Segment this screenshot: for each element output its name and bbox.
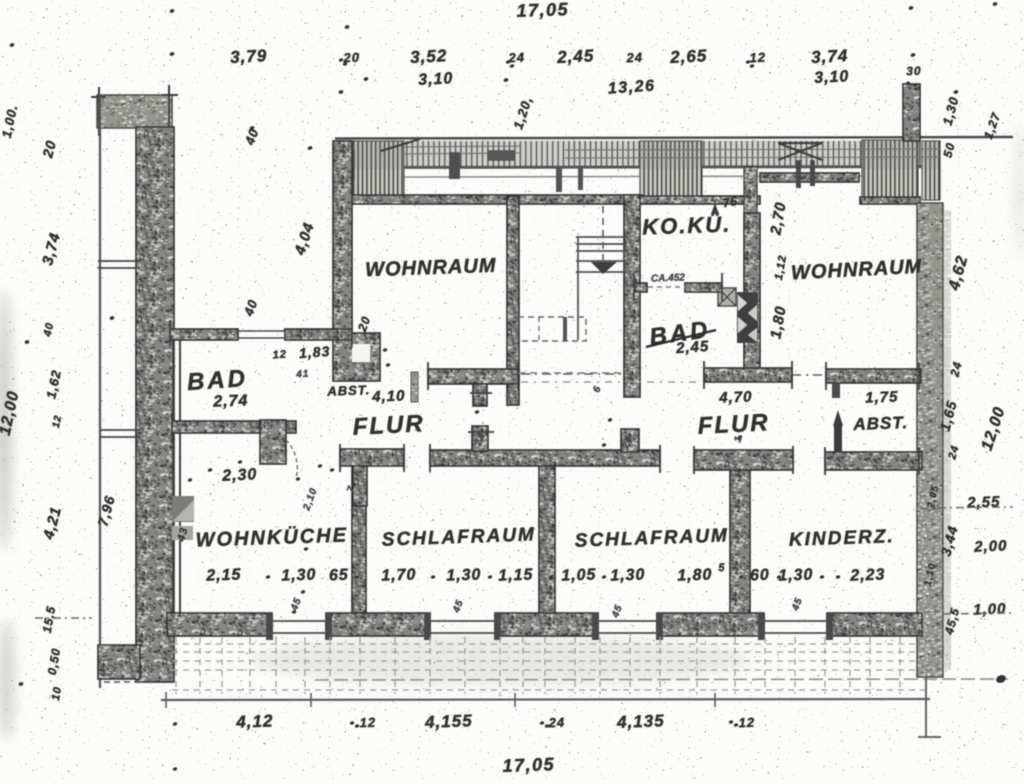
svg-text:75: 75 <box>722 194 740 210</box>
svg-text:2,65: 2,65 <box>669 46 708 67</box>
svg-text:1,75: 1,75 <box>865 388 899 406</box>
svg-text:1,30: 1,30 <box>610 566 646 584</box>
svg-text:60: 60 <box>750 567 770 585</box>
svg-text:KO.KÜ.: KO.KÜ. <box>642 211 732 239</box>
svg-text:12: 12 <box>272 349 287 362</box>
svg-text:1,70: 1,70 <box>381 566 417 584</box>
svg-text:65: 65 <box>329 567 349 585</box>
svg-text:24: 24 <box>547 715 565 731</box>
svg-text:41: 41 <box>295 369 310 381</box>
svg-text:2,45: 2,45 <box>675 338 710 357</box>
svg-text:WOHNRAUM: WOHNRAUM <box>365 255 497 282</box>
svg-text:2,30: 2,30 <box>221 466 258 485</box>
svg-text:3,52: 3,52 <box>410 46 448 67</box>
svg-text:2,23: 2,23 <box>849 566 886 584</box>
svg-text:BAD: BAD <box>186 365 249 396</box>
svg-text:1,00: 1,00 <box>973 600 1007 618</box>
svg-text:1,05: 1,05 <box>561 566 597 584</box>
svg-text:2,55: 2,55 <box>966 493 1001 511</box>
svg-text:24: 24 <box>507 50 525 66</box>
svg-text:2,74: 2,74 <box>212 392 249 410</box>
svg-text:3,10: 3,10 <box>814 68 850 87</box>
svg-text:17,05: 17,05 <box>502 754 555 776</box>
svg-text:1,83: 1,83 <box>299 343 331 361</box>
svg-text:2,15: 2,15 <box>205 566 242 584</box>
svg-text:2,45: 2,45 <box>556 46 595 67</box>
svg-text:CA.452: CA.452 <box>651 272 686 284</box>
svg-text:4,12: 4,12 <box>235 711 274 731</box>
svg-text:3,79: 3,79 <box>230 46 268 67</box>
svg-text:12: 12 <box>359 715 376 731</box>
svg-text:1,80: 1,80 <box>677 566 713 584</box>
svg-text:17,05: 17,05 <box>516 0 569 21</box>
svg-text:4,10: 4,10 <box>371 387 406 405</box>
svg-text:1,30: 1,30 <box>281 566 317 584</box>
svg-text:4,70: 4,70 <box>718 388 753 406</box>
svg-text:3,10: 3,10 <box>418 70 454 89</box>
svg-text:5: 5 <box>718 562 726 574</box>
svg-text:4,155: 4,155 <box>424 711 473 732</box>
svg-text:30: 30 <box>906 64 922 79</box>
svg-text:KINDERZ.: KINDERZ. <box>789 526 895 551</box>
svg-text:10: 10 <box>50 685 64 701</box>
svg-text:13,26: 13,26 <box>607 77 656 97</box>
svg-text:24: 24 <box>625 50 643 66</box>
svg-text:3,74: 3,74 <box>811 46 849 67</box>
svg-text:1,30: 1,30 <box>446 566 482 584</box>
svg-text:12: 12 <box>738 715 755 731</box>
svg-text:FLUR: FLUR <box>352 410 425 441</box>
svg-text:2,00: 2,00 <box>973 537 1008 555</box>
svg-text:ABST.: ABST. <box>326 382 371 399</box>
svg-text:ABST.: ABST. <box>852 413 908 434</box>
svg-text:12: 12 <box>749 50 766 66</box>
svg-text:1,15: 1,15 <box>498 566 534 584</box>
svg-text:1,30: 1,30 <box>778 566 814 584</box>
svg-text:4,135: 4,135 <box>616 711 665 732</box>
